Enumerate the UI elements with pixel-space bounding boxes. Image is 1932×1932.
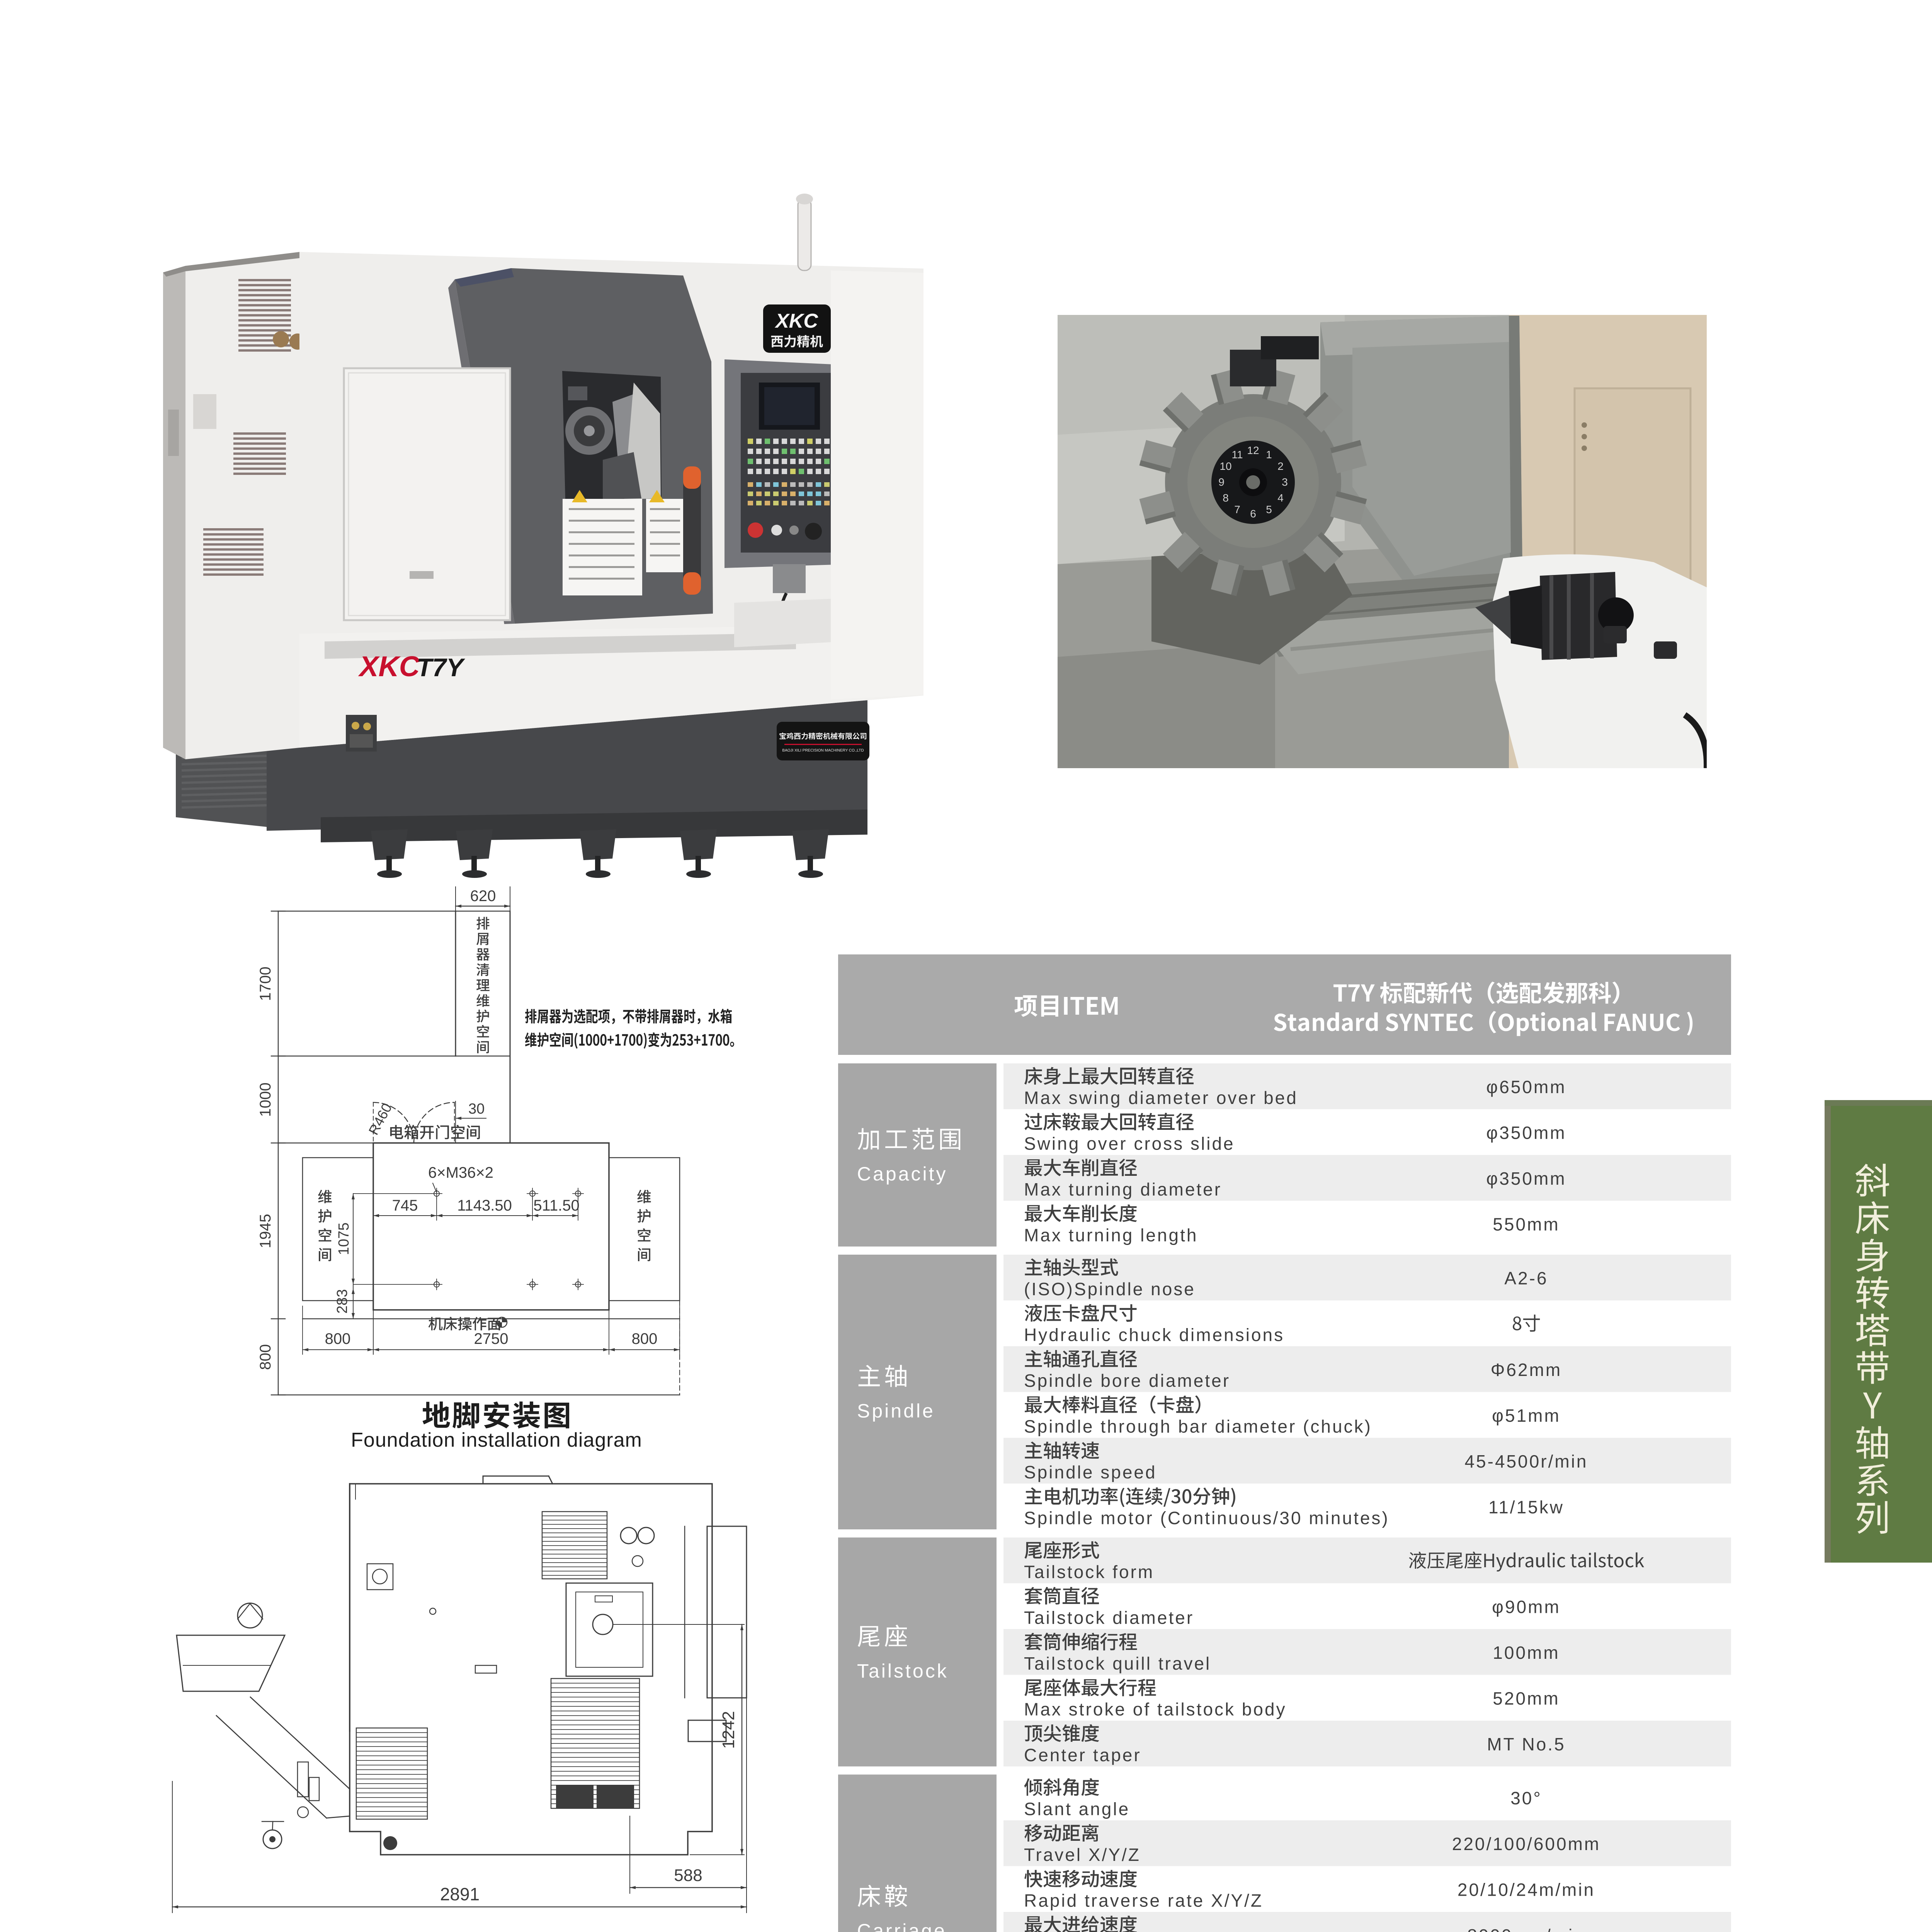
svg-text:Swing over cross slide: Swing over cross slide <box>1024 1134 1235 1154</box>
svg-text:φ51mm: φ51mm <box>1492 1406 1561 1426</box>
svg-text:4: 4 <box>1277 492 1284 504</box>
svg-text:550mm: 550mm <box>1493 1214 1560 1235</box>
svg-text:283: 283 <box>334 1289 350 1313</box>
svg-text:511.50: 511.50 <box>533 1197 579 1214</box>
svg-text:Max turning length: Max turning length <box>1024 1225 1198 1245</box>
svg-text:7: 7 <box>1234 503 1240 515</box>
svg-text:φ650mm: φ650mm <box>1486 1077 1566 1097</box>
svg-text:Center taper: Center taper <box>1024 1745 1141 1765</box>
svg-text:Max stroke of tailstock body: Max stroke of tailstock body <box>1024 1699 1287 1719</box>
svg-text:620: 620 <box>470 888 496 905</box>
svg-text:8: 8 <box>1223 492 1229 504</box>
svg-text:2891: 2891 <box>440 1884 480 1904</box>
svg-text:Φ62mm: Φ62mm <box>1491 1360 1562 1380</box>
svg-text:Max turning diameter: Max turning diameter <box>1024 1179 1222 1199</box>
svg-text:2: 2 <box>1277 460 1284 472</box>
svg-text:Spindle motor (Continuous/30: Spindle motor (Continuous/30 minutes) <box>1024 1508 1389 1528</box>
svg-text:30°: 30° <box>1510 1788 1542 1808</box>
svg-text:Hydraulic chuck dimensions: Hydraulic chuck dimensions <box>1024 1325 1284 1345</box>
svg-text:Tailstock quill travel: Tailstock quill travel <box>1024 1653 1211 1673</box>
svg-text:45-4500r/min: 45-4500r/min <box>1464 1451 1588 1471</box>
svg-text:XKC: XKC <box>358 650 420 682</box>
svg-text:588: 588 <box>674 1866 702 1885</box>
svg-text:Spindle: Spindle <box>857 1400 935 1422</box>
svg-text:BAOJI XILI PRECISION MACHINERY: BAOJI XILI PRECISION MACHINERY CO.,LTD <box>782 748 864 753</box>
svg-text:Tailstock diameter: Tailstock diameter <box>1024 1608 1194 1628</box>
svg-text:Slant angle: Slant angle <box>1024 1799 1130 1819</box>
svg-text:Rapid traverse rate X/Y/Z: Rapid traverse rate X/Y/Z <box>1024 1891 1263 1911</box>
svg-text:1143.50: 1143.50 <box>457 1197 512 1214</box>
svg-text:XKC: XKC <box>774 310 818 332</box>
svg-text:φ90mm: φ90mm <box>1492 1597 1561 1617</box>
svg-text:1700: 1700 <box>257 967 274 1001</box>
svg-text:3: 3 <box>1282 476 1288 488</box>
svg-text:8000mm/min: 8000mm/min <box>1467 1925 1585 1932</box>
svg-text:Tailstock: Tailstock <box>857 1660 949 1682</box>
svg-text:6×M36×2: 6×M36×2 <box>428 1164 493 1181</box>
svg-text:Spindle through bar diameter: Spindle through bar diameter (chuck) <box>1024 1417 1372 1437</box>
svg-text:Max swing diameter over bed: Max swing diameter over bed <box>1024 1088 1298 1108</box>
svg-text:Carriage: Carriage <box>857 1920 947 1932</box>
svg-text:φ350mm: φ350mm <box>1486 1168 1566 1189</box>
svg-text:9: 9 <box>1218 476 1225 488</box>
svg-text:5: 5 <box>1266 503 1272 515</box>
svg-text:Capacity: Capacity <box>857 1163 948 1185</box>
svg-text:800: 800 <box>325 1330 351 1347</box>
svg-text:Tailstock form: Tailstock form <box>1024 1562 1154 1582</box>
svg-text:30: 30 <box>468 1101 485 1117</box>
svg-text:220/100/600mm: 220/100/600mm <box>1452 1834 1600 1854</box>
svg-text:520mm: 520mm <box>1493 1689 1560 1709</box>
svg-text:(ISO)Spindle nose: (ISO)Spindle nose <box>1024 1279 1196 1299</box>
svg-text:1075: 1075 <box>336 1223 352 1255</box>
svg-text:20/10/24m/min: 20/10/24m/min <box>1458 1880 1595 1900</box>
svg-text:1945: 1945 <box>257 1214 274 1248</box>
svg-text:800: 800 <box>257 1344 274 1370</box>
svg-text:Foundation installation diagra: Foundation installation diagram <box>351 1429 642 1451</box>
svg-text:11/15kw: 11/15kw <box>1488 1497 1564 1517</box>
svg-text:12: 12 <box>1247 444 1259 456</box>
svg-text:MT No.5: MT No.5 <box>1487 1734 1566 1754</box>
svg-text:A2-6: A2-6 <box>1504 1268 1548 1288</box>
svg-text:1: 1 <box>1266 449 1272 461</box>
svg-text:11: 11 <box>1231 449 1243 461</box>
svg-text:1242: 1242 <box>719 1711 738 1749</box>
svg-text:Spindle speed: Spindle speed <box>1024 1462 1157 1482</box>
svg-text:Spindle bore diameter: Spindle bore diameter <box>1024 1371 1230 1391</box>
svg-text:100mm: 100mm <box>1493 1643 1560 1663</box>
svg-text:800: 800 <box>632 1330 658 1347</box>
svg-text:Travel X/Y/Z: Travel X/Y/Z <box>1024 1845 1141 1865</box>
svg-text:T7Y: T7Y <box>417 653 465 682</box>
svg-text:745: 745 <box>392 1197 418 1214</box>
svg-text:10: 10 <box>1219 460 1231 472</box>
svg-text:6: 6 <box>1250 508 1256 520</box>
svg-text:φ350mm: φ350mm <box>1486 1123 1566 1143</box>
svg-text:2750: 2750 <box>474 1330 509 1347</box>
svg-text:1000: 1000 <box>257 1083 274 1117</box>
